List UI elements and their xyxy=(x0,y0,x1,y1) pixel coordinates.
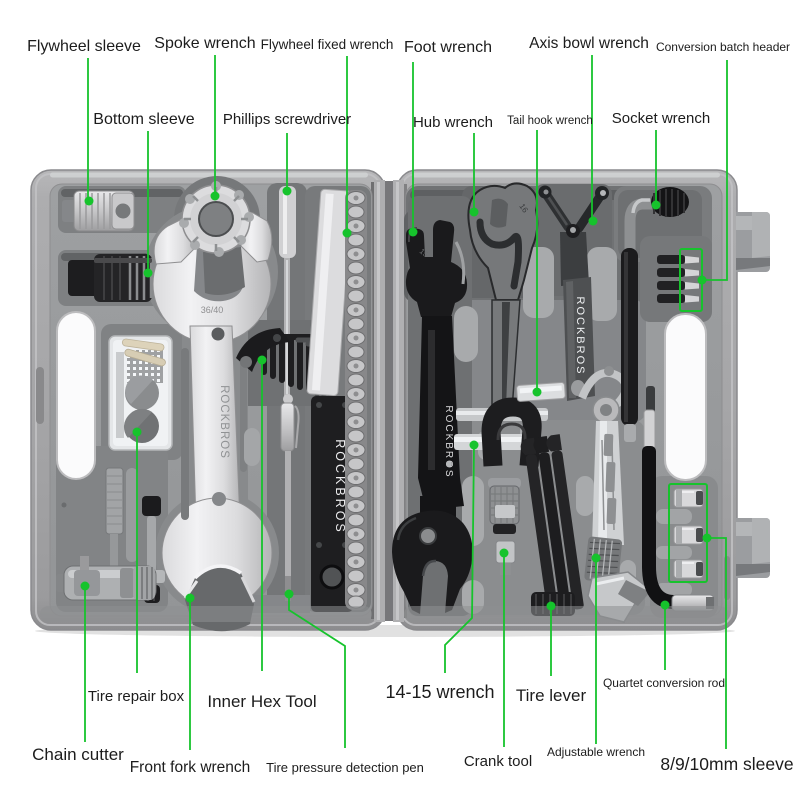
svg-text:Foot wrench: Foot wrench xyxy=(404,39,492,56)
svg-text:Front fork wrench: Front fork wrench xyxy=(130,759,251,776)
svg-text:ROCKBROS: ROCKBROS xyxy=(218,385,230,459)
svg-text:Axis bowl wrench: Axis bowl wrench xyxy=(529,35,649,52)
svg-text:Phillips screwdriver: Phillips screwdriver xyxy=(223,111,351,128)
svg-text:Flywheel sleeve: Flywheel sleeve xyxy=(27,38,141,55)
svg-text:Adjustable wrench: Adjustable wrench xyxy=(547,745,645,759)
svg-text:Conversion batch header: Conversion batch header xyxy=(656,40,790,54)
svg-text:Inner Hex Tool: Inner Hex Tool xyxy=(207,692,316,711)
svg-text:Tire pressure detection pen: Tire pressure detection pen xyxy=(266,760,424,775)
svg-text:Crank tool: Crank tool xyxy=(464,753,532,770)
svg-text:Flywheel fixed wrench: Flywheel fixed wrench xyxy=(261,37,394,52)
svg-text:36/40: 36/40 xyxy=(201,305,224,315)
svg-text:Spoke wrench: Spoke wrench xyxy=(154,35,255,52)
svg-text:Tire lever: Tire lever xyxy=(516,686,587,705)
svg-text:Hub wrench: Hub wrench xyxy=(413,114,493,131)
svg-text:ROCKBROS: ROCKBROS xyxy=(443,405,454,478)
svg-text:Chain cutter: Chain cutter xyxy=(32,745,124,764)
svg-text:Tail hook wrench: Tail hook wrench xyxy=(507,115,593,127)
svg-text:14-15 wrench: 14-15 wrench xyxy=(385,682,494,702)
svg-text:8/9/10mm sleeve: 8/9/10mm sleeve xyxy=(660,754,793,774)
svg-text:Socket wrench: Socket wrench xyxy=(612,110,710,127)
svg-text:ROCKBROS: ROCKBROS xyxy=(574,297,586,376)
svg-text:ROCKBROS: ROCKBROS xyxy=(333,439,347,535)
svg-text:Tire repair box: Tire repair box xyxy=(88,688,185,705)
svg-text:Quartet conversion rod: Quartet conversion rod xyxy=(603,676,725,690)
svg-text:Bottom sleeve: Bottom sleeve xyxy=(93,111,194,128)
